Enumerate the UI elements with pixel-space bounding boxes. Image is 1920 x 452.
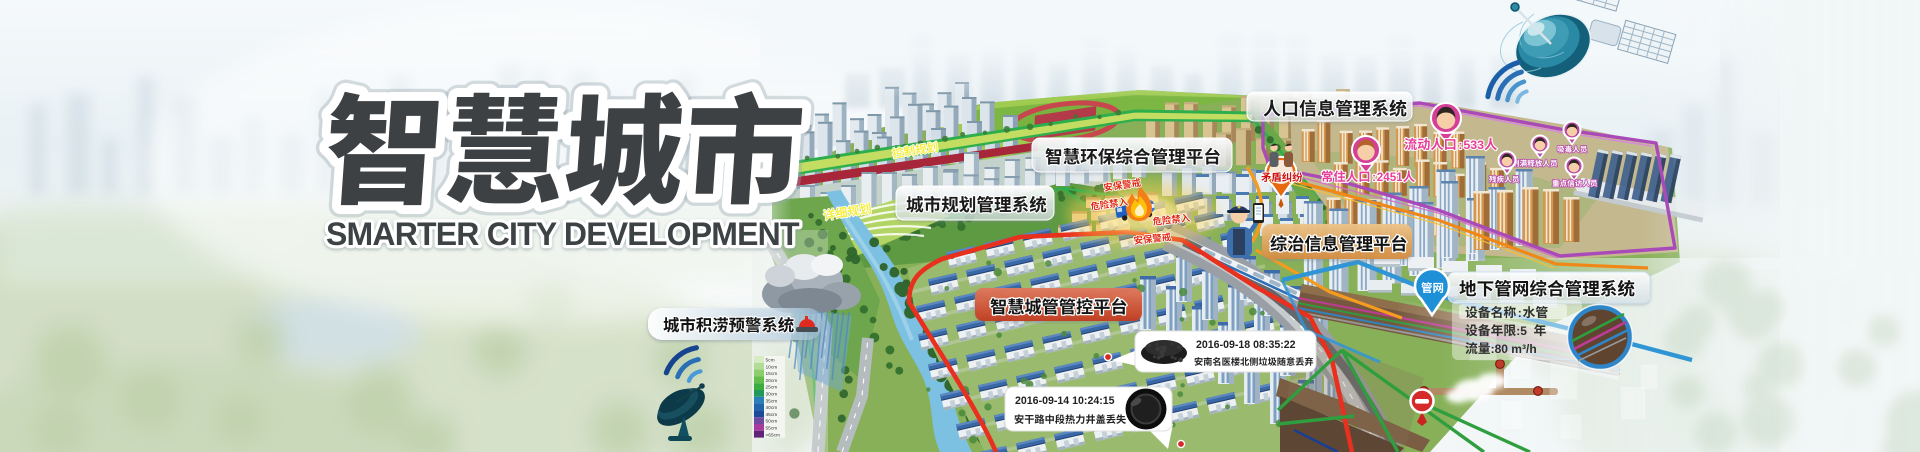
svg-text:5cm: 5cm bbox=[766, 358, 775, 364]
svg-text:2451: 2451 bbox=[1377, 171, 1403, 184]
svg-text:40cm: 40cm bbox=[766, 405, 778, 411]
svg-text::: : bbox=[1458, 138, 1462, 152]
svg-text:>65cm: >65cm bbox=[766, 432, 781, 438]
svg-text:55cm: 55cm bbox=[766, 426, 778, 432]
svg-text:35cm: 35cm bbox=[766, 398, 778, 404]
svg-text::: : bbox=[1372, 171, 1376, 184]
svg-text:2016-09-14 10:24:15: 2016-09-14 10:24:15 bbox=[1015, 395, 1115, 407]
svg-text:25cm: 25cm bbox=[766, 385, 778, 391]
svg-text:10cm: 10cm bbox=[766, 364, 778, 370]
svg-text:45cm: 45cm bbox=[766, 412, 778, 418]
svg-text:20cm: 20cm bbox=[766, 378, 778, 384]
svg-text::: : bbox=[1518, 306, 1522, 320]
svg-text::5: :5 bbox=[1516, 324, 1527, 338]
svg-text:15cm: 15cm bbox=[766, 371, 778, 377]
svg-text:SMARTER CITY DEVELOPMENT: SMARTER CITY DEVELOPMENT bbox=[326, 216, 800, 252]
svg-text:2016-09-18 08:35:22: 2016-09-18 08:35:22 bbox=[1196, 339, 1296, 351]
svg-text:50cm: 50cm bbox=[766, 419, 778, 425]
svg-text:30cm: 30cm bbox=[766, 392, 778, 398]
svg-text:533: 533 bbox=[1463, 138, 1484, 152]
svg-text::80 m³/h: :80 m³/h bbox=[1491, 342, 1537, 356]
